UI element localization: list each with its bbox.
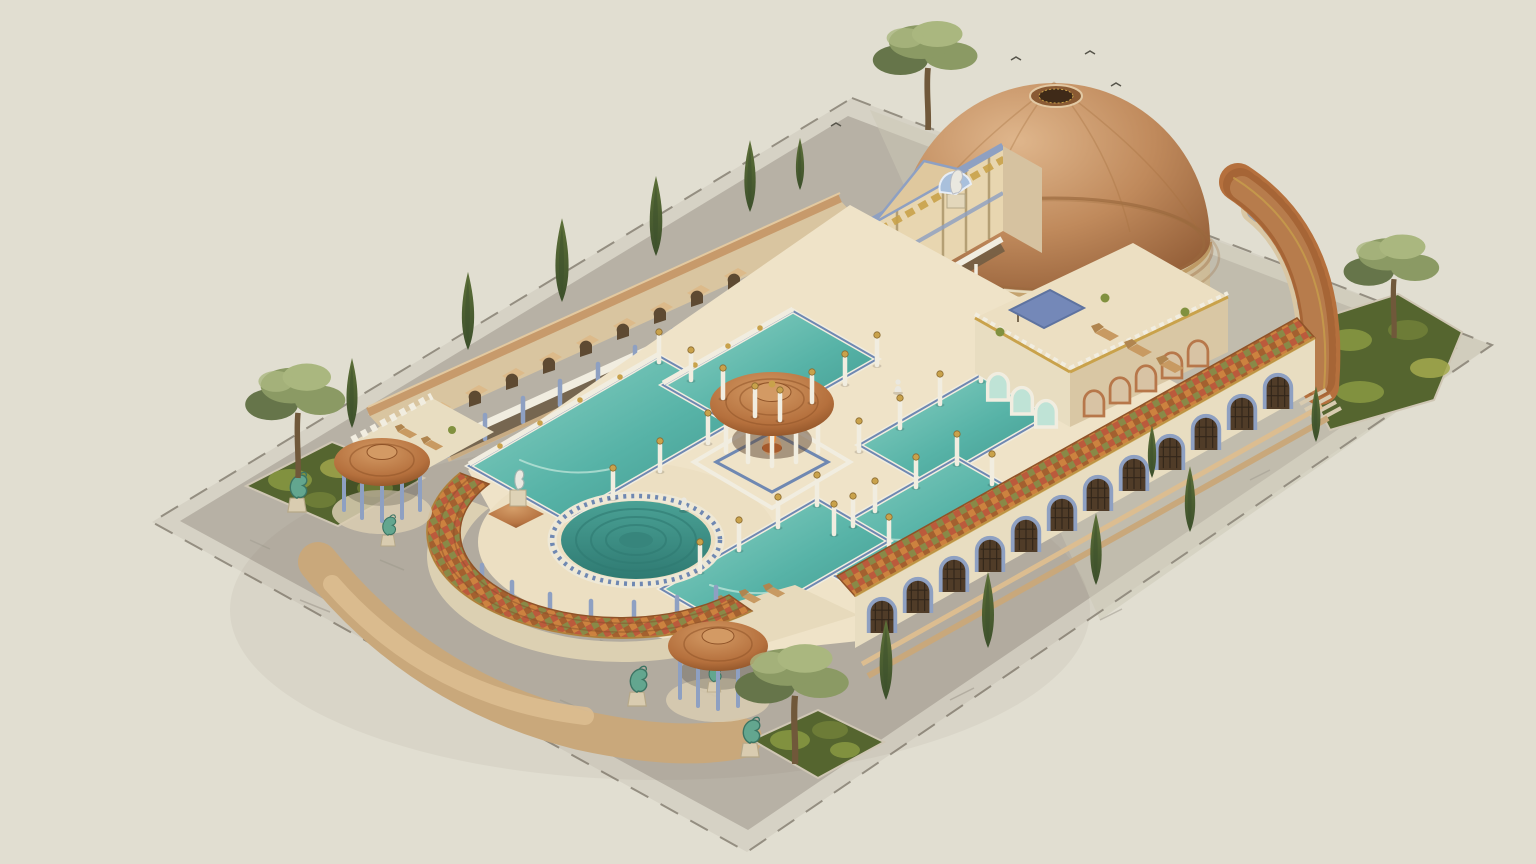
potted-plant [1181, 308, 1190, 317]
round-pool [552, 496, 720, 584]
exedra-statue [515, 470, 524, 490]
potted-plant [1101, 294, 1110, 303]
potted-plant [996, 328, 1005, 337]
roman-bath-illustration: Isometric architectural illustration of … [0, 0, 1536, 864]
illustration-canvas: Isometric architectural illustration of … [0, 0, 1536, 864]
tholos-finial [769, 381, 776, 388]
potted-plant [448, 426, 456, 434]
